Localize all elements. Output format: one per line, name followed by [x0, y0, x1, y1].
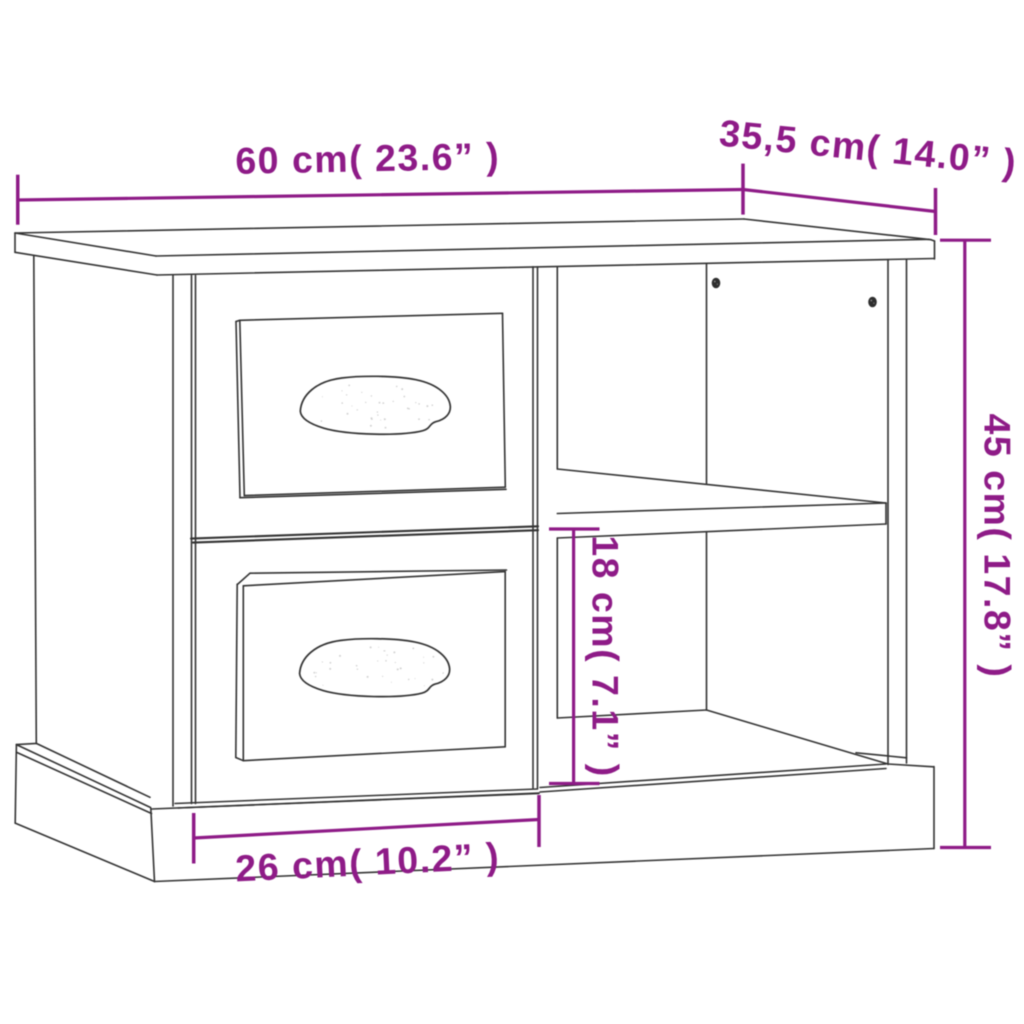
svg-text:18 cm( 7.1” ): 18 cm( 7.1” ): [585, 535, 627, 778]
svg-text:60 cm( 23.6” ): 60 cm( 23.6” ): [235, 135, 501, 182]
svg-text:45 cm( 17.8” ): 45 cm( 17.8” ): [977, 414, 1019, 679]
